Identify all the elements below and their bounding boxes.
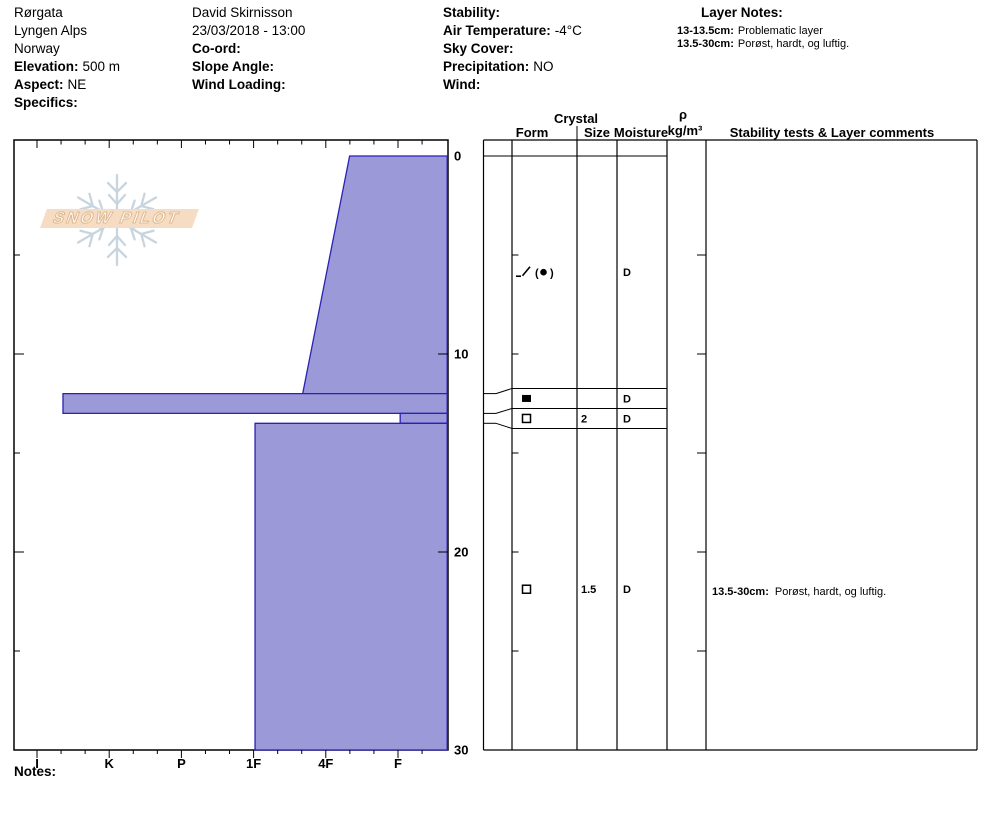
grain-size-value: 2 [581, 413, 587, 425]
hardness-layer-4 [255, 423, 447, 750]
snowflake-line [109, 195, 117, 204]
hardness-layer-2 [63, 394, 447, 414]
snowflake-line [85, 234, 97, 246]
depth-axis-label: 30 [454, 743, 468, 758]
hardness-axis-label: 1F [246, 756, 261, 771]
snowpilot-logo-text: SNOW PILOT [40, 209, 199, 228]
snowpilot-profile-page: Rørgata Lyngen Alps Norway Elevation:500… [0, 0, 994, 840]
grain-form-symbol-facets [523, 414, 531, 422]
snowflake-line [109, 236, 117, 245]
snowflake-line [117, 236, 125, 245]
grain-form-paren-open: ( [535, 268, 539, 280]
snowflake-line [85, 194, 97, 206]
hardness-layer-3 [400, 413, 447, 423]
moisture-value: D [623, 584, 631, 596]
grain-form-symbol-facets [523, 585, 531, 593]
hardness-axis-label: F [394, 756, 402, 771]
hardness-layer-1 [303, 156, 448, 394]
grain-form-symbol-df-slash [523, 267, 531, 276]
snowflake-line [117, 183, 126, 192]
snowflake-line [108, 248, 117, 257]
moisture-value: D [623, 393, 631, 405]
funnel-leader [496, 423, 512, 428]
depth-axis-label: 0 [454, 149, 461, 164]
funnel-leader [496, 388, 512, 393]
snowflake-line [137, 194, 149, 206]
hardness-axis-label: 4F [318, 756, 333, 771]
snowflake-line [108, 183, 117, 192]
moisture-value: D [623, 413, 631, 425]
snowflake-line [137, 234, 149, 246]
grain-form-paren-close: ) [550, 268, 554, 280]
hardness-profile-chart: IKP1F4FF0102030()DD2D1.5D13.5-30cm:Porøs… [0, 0, 994, 840]
snowflake-line [117, 248, 126, 257]
snowpilot-logo-banner: SNOW PILOT [40, 209, 199, 228]
grain-form-symbol-ice [522, 395, 531, 402]
funnel-leader [496, 408, 512, 413]
grain-size-value: 1.5 [581, 584, 596, 596]
hardness-axis-label: K [105, 756, 115, 771]
snowflake-line [117, 195, 125, 204]
moisture-value: D [623, 267, 631, 279]
hardness-axis-label: P [177, 756, 186, 771]
depth-axis-label: 20 [454, 545, 468, 560]
layer-comment: 13.5-30cm:Porøst, hardt, og luftig. [712, 586, 886, 598]
depth-axis-label: 10 [454, 347, 468, 362]
hardness-axis-label: I [35, 756, 39, 771]
grain-form-symbol-rounded-grain [540, 269, 547, 276]
